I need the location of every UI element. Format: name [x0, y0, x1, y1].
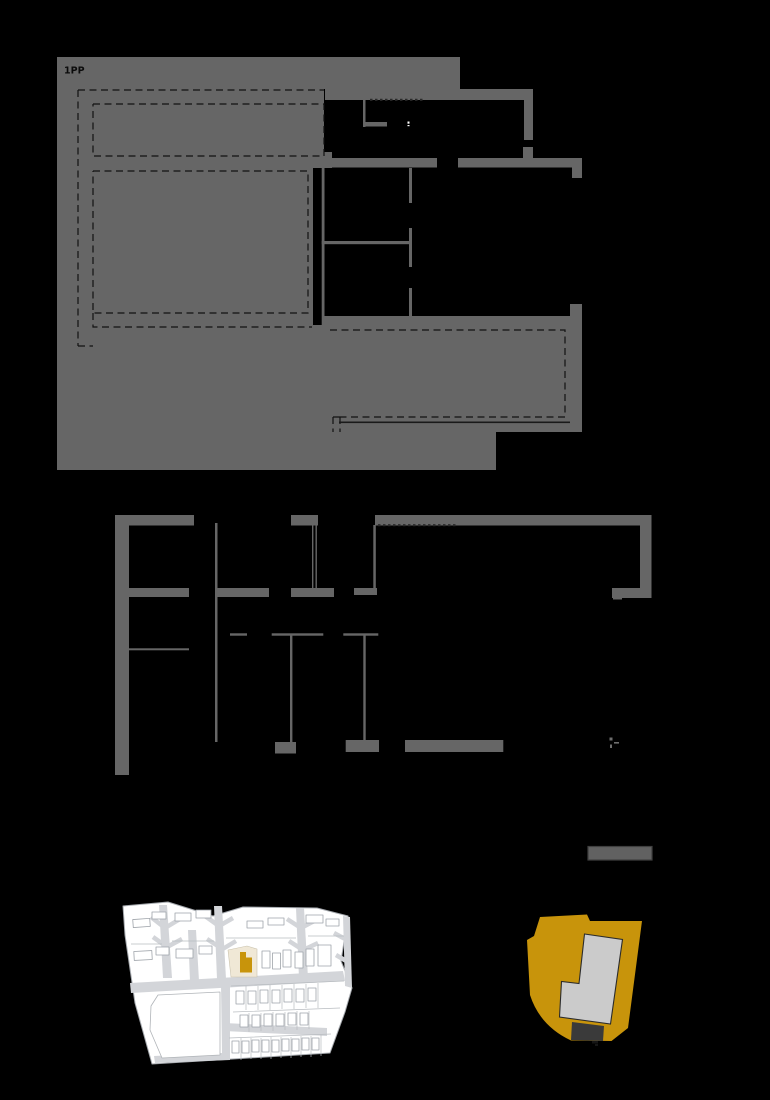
floor-band-left: [324, 158, 437, 168]
line-h-3: [272, 633, 324, 635]
slab-left-column: [57, 57, 332, 327]
wall-mid-3: [291, 588, 334, 597]
floor-label-1pp: 1PP: [64, 66, 85, 77]
wall-top: [325, 89, 533, 100]
fixture-marker: [408, 122, 410, 127]
terrace-edge-line: [339, 422, 570, 424]
floor-plan-1pp: 1PP: [57, 57, 582, 470]
wall-v-5: [363, 635, 365, 742]
floor-band-right: [458, 158, 582, 168]
wall-top-1: [117, 515, 194, 526]
wall-v-long: [215, 523, 218, 742]
wall-top-2: [291, 515, 318, 526]
blueprint-canvas: 1PP: [0, 0, 770, 1100]
line-h-1: [118, 648, 189, 650]
scale-bar: [588, 847, 652, 861]
site-plan: [123, 902, 352, 1064]
floor-plan-ground: [115, 515, 652, 775]
wall-v-4: [290, 635, 292, 742]
terrace-body: [310, 325, 570, 432]
lot-entry-mark: [592, 1041, 598, 1046]
field: [150, 992, 220, 1058]
rooms-mid-wall-4: [409, 288, 412, 316]
wall-v-double-a: [312, 525, 313, 588]
stub-bottom-2: [346, 740, 379, 752]
wall-v-double-b: [316, 525, 317, 588]
wall-v-3: [373, 525, 376, 588]
lot-diagram: [527, 915, 642, 1047]
line-h-4: [343, 633, 378, 635]
bottom-band: [322, 316, 572, 325]
rooms-mid-wall-3: [409, 244, 412, 267]
slab-lower-left: [57, 320, 313, 440]
wall-top-3: [375, 515, 652, 526]
wall-mid-5-notch: [613, 595, 622, 600]
scale-figure-icon: [610, 738, 620, 749]
wall-mid-4: [354, 588, 377, 595]
floor-band-notch: [572, 167, 582, 178]
wall-stub-up: [523, 147, 533, 159]
wall-right-a: [524, 100, 533, 140]
rooms-mid-wall-1: [409, 168, 412, 203]
wall-left-thick: [115, 515, 129, 775]
architectural-drawing: 1PP: [0, 0, 770, 1100]
wall-right: [640, 515, 652, 598]
wall-mid-1: [117, 588, 189, 597]
wall-mid-2: [217, 588, 269, 597]
stub-bottom-3: [405, 740, 503, 752]
line-h-2: [230, 633, 247, 635]
rooms-divider: [322, 241, 412, 244]
wall-thin-h: [363, 122, 387, 127]
stub-bottom-1: [275, 742, 296, 754]
